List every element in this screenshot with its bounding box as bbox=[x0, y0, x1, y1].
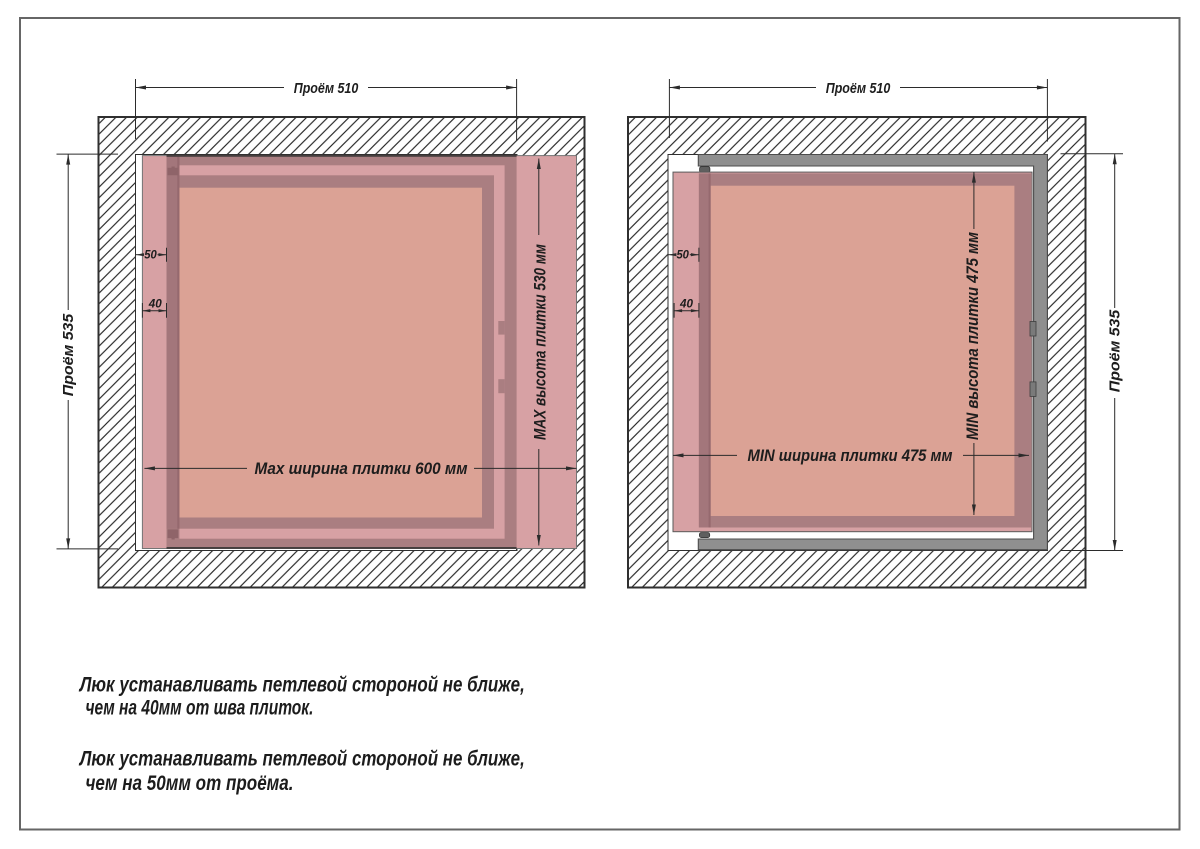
svg-text:50: 50 bbox=[144, 248, 157, 262]
svg-text:Люк устанавливать петлевой сто: Люк устанавливать петлевой стороной не б… bbox=[78, 674, 525, 697]
svg-text:чем на 40мм от шва плиток.: чем на 40мм от шва плиток. bbox=[86, 697, 314, 720]
svg-text:Проём 510: Проём 510 bbox=[294, 81, 359, 97]
svg-text:Проём 535: Проём 535 bbox=[61, 313, 77, 397]
svg-text:50: 50 bbox=[676, 248, 689, 262]
svg-text:MIN высота плитки 475 мм: MIN высота плитки 475 мм bbox=[963, 232, 982, 440]
svg-text:40: 40 bbox=[679, 297, 693, 311]
svg-text:Мах ширина плитки 600 мм: Мах ширина плитки 600 мм bbox=[255, 459, 468, 478]
svg-text:MIN ширина плитки 475 мм: MIN ширина плитки 475 мм bbox=[748, 446, 953, 465]
svg-text:40: 40 bbox=[148, 297, 162, 311]
svg-text:Люк устанавливать петлевой сто: Люк устанавливать петлевой стороной не б… bbox=[78, 748, 525, 771]
svg-text:Проём 510: Проём 510 bbox=[826, 81, 891, 97]
svg-text:MAX высота плитки 530 мм: MAX высота плитки 530 мм bbox=[531, 244, 550, 440]
svg-text:Проём 535: Проём 535 bbox=[1108, 309, 1124, 393]
svg-text:чем на 50мм от проёма.: чем на 50мм от проёма. bbox=[86, 772, 294, 795]
